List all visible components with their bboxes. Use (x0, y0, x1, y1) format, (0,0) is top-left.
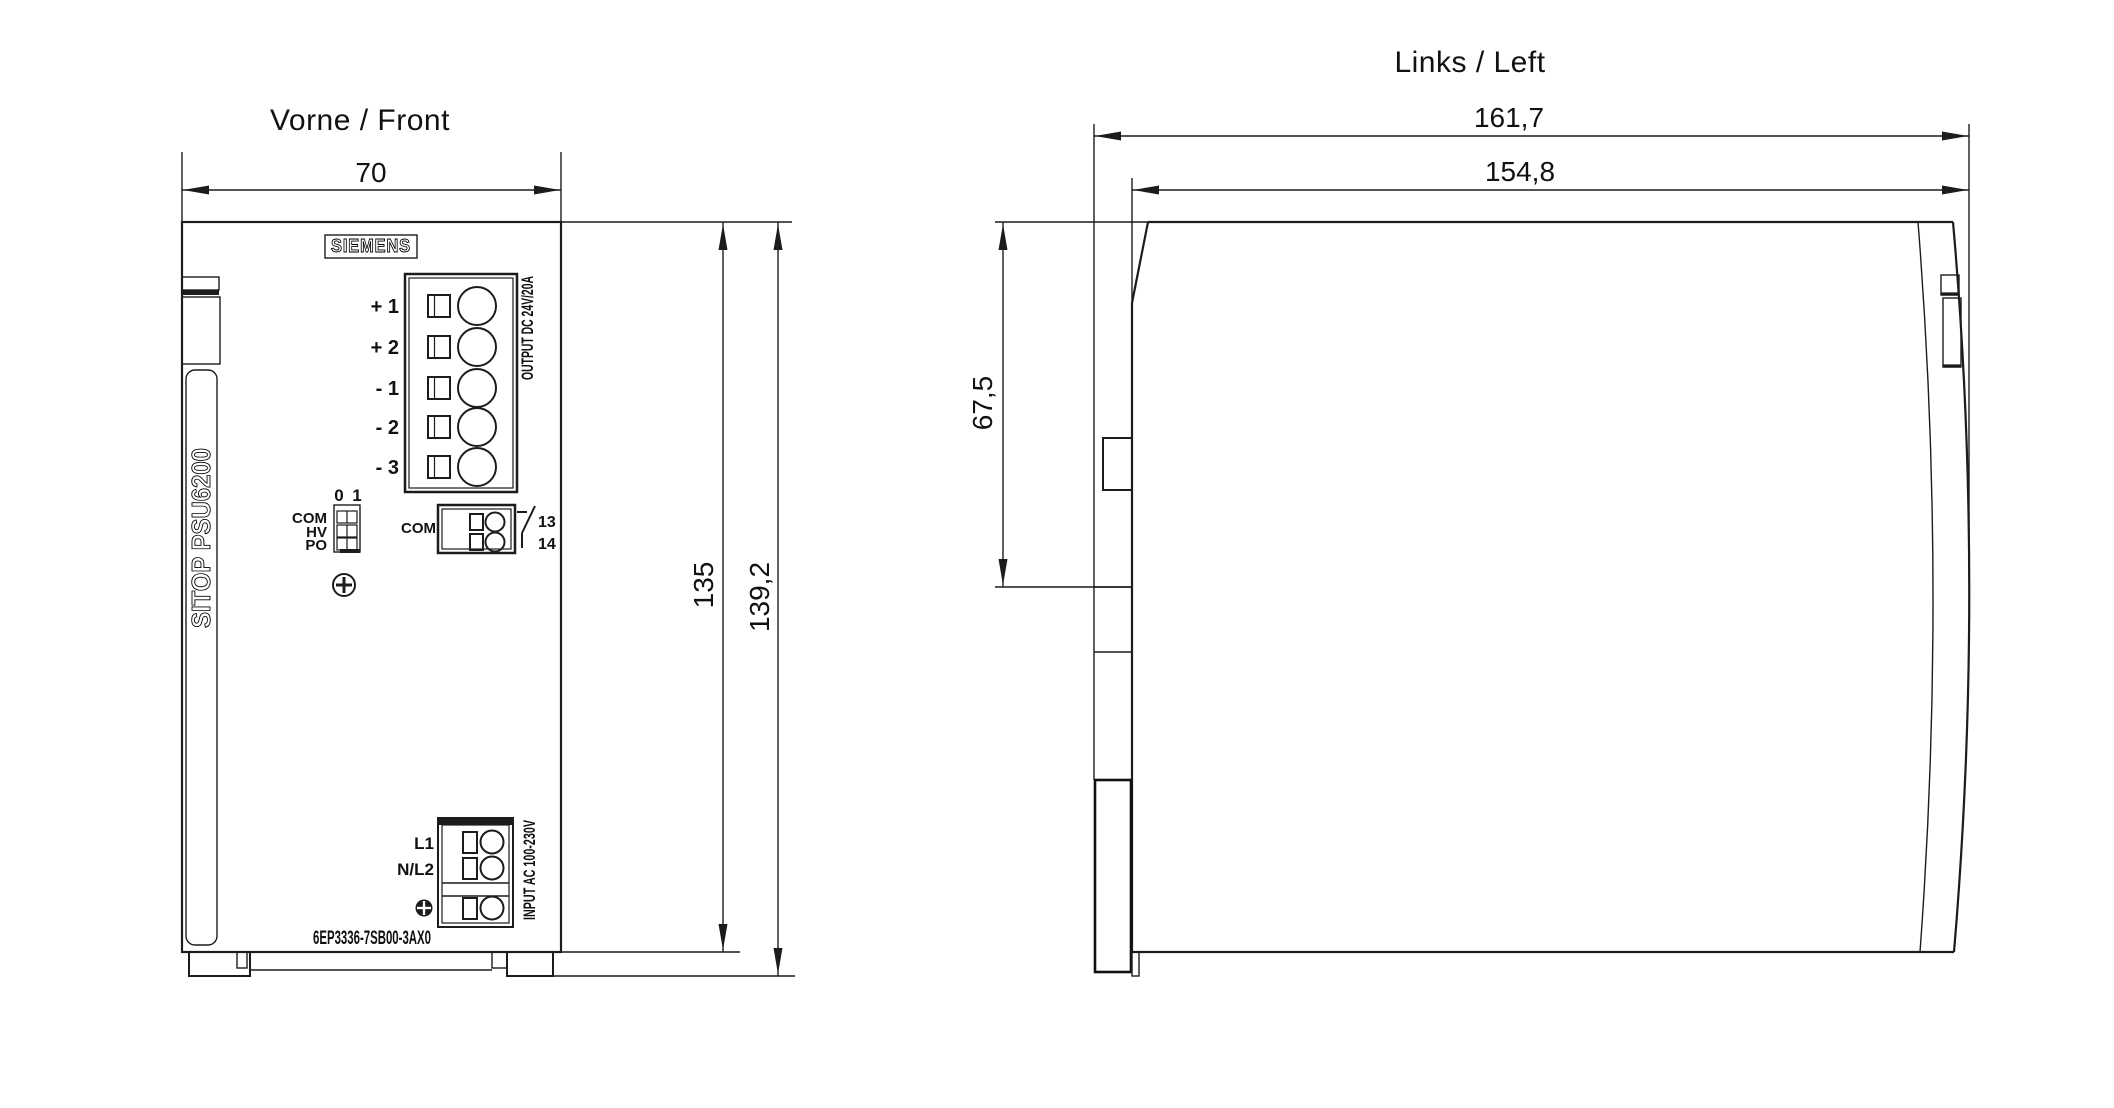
screw-terminal (458, 369, 496, 407)
input-screw-pe (481, 897, 504, 920)
output-terminal-row-4: - 2 (376, 408, 496, 446)
screw-terminal (458, 328, 496, 366)
front-face-inner-curve (1918, 222, 1933, 952)
relay-clamp-14 (470, 534, 483, 550)
front-view: Vorne / Front 70 135 139,2 (182, 104, 795, 976)
output-terminal-row-5: - 3 (376, 448, 496, 486)
input-block-top-bar (438, 818, 513, 825)
side-tab-small (182, 277, 219, 290)
dip-bottom-bar (340, 549, 360, 553)
left-top-offset-value: 67,5 (967, 376, 998, 431)
left-top-chamfer (1132, 222, 1148, 303)
input-terminal-block: L1 N/L2 INPUT AC 100-230V (397, 818, 539, 927)
dip-label-po: PO (305, 537, 327, 554)
input-screw-l1 (481, 831, 504, 854)
drawing-canvas: Vorne / Front 70 135 139,2 (0, 0, 2114, 1108)
front-width-dimension: 70 (182, 152, 561, 221)
terminal-label-plus2: + 2 (371, 337, 399, 359)
left-total-depth-value: 161,7 (1474, 102, 1544, 133)
left-view: Links / Left 161,7 154,8 67,5 (967, 46, 1969, 976)
left-body-outline (1132, 222, 1969, 952)
side-terminal-lower (1943, 298, 1961, 367)
output-terminal-row-2: + 2 (371, 328, 496, 366)
din-foot-left (189, 952, 250, 976)
dim-arrow-right (534, 186, 560, 195)
din-feet (189, 952, 553, 976)
brand-text: SIEMENS (331, 236, 411, 256)
input-clamp-n (463, 858, 477, 879)
input-screw-n (481, 857, 504, 880)
front-width-value: 70 (355, 157, 386, 188)
din-latch-slider (1095, 780, 1131, 972)
input-clamp-l1 (463, 832, 477, 853)
front-total-height-value: 139,2 (744, 562, 775, 632)
dim-arrow-left (183, 186, 209, 195)
dip-scale-1: 1 (352, 486, 361, 505)
input-rating-label: INPUT AC 100-230V (520, 820, 539, 920)
side-terminal-upper (1941, 275, 1959, 295)
output-terminal-row-3: - 1 (376, 369, 496, 407)
side-tab-bar (182, 290, 219, 295)
input-l1-label: L1 (414, 834, 434, 853)
terminal-label-plus1: + 1 (371, 296, 399, 318)
left-body-depth-value: 154,8 (1485, 156, 1555, 187)
front-body: SITOP PSU6200 (182, 222, 561, 976)
product-name-label: SITOP PSU6200 (186, 448, 216, 628)
dimension-drawing: Vorne / Front 70 135 139,2 (0, 0, 2114, 1108)
din-hook-tab (1103, 438, 1132, 490)
output-rating-label: OUTPUT DC 24V/20A (518, 276, 537, 380)
left-view-title: Links / Left (1394, 46, 1545, 79)
din-foot-step (1132, 952, 1139, 976)
output-terminal-block: + 1 + 2 - 1 - 2 - 3 OUTPUT (371, 274, 537, 492)
screw-terminal (458, 408, 496, 446)
din-foot-right (507, 952, 553, 976)
dip-scale-0: 0 (334, 486, 343, 505)
relay-terminal: COM 13 14 (401, 505, 556, 553)
screw-terminal (458, 287, 496, 325)
potentiometer-screw-icon (333, 574, 355, 596)
contact-14-label: 14 (538, 536, 556, 553)
terminal-label-minus2: - 2 (376, 417, 399, 439)
output-terminal-row-1: + 1 (371, 287, 496, 325)
input-n-label: N/L2 (397, 860, 434, 879)
terminal-label-minus3: - 3 (376, 457, 399, 479)
terminal-label-minus1: - 1 (376, 378, 399, 400)
din-notch-right (492, 952, 507, 968)
part-number: 6EP3336-7SB00-3AX0 (313, 928, 431, 949)
no-contact-symbol (517, 506, 535, 548)
dip-switch: 0 1 COM HV PO (292, 486, 362, 554)
front-height-dimensions: 135 139,2 (553, 222, 795, 976)
relay-com-label: COM (401, 520, 436, 537)
left-body-depth-dimension: 154,8 (1132, 156, 1969, 305)
screw-terminal (458, 448, 496, 486)
front-height-value: 135 (688, 562, 719, 609)
relay-clamp-13 (470, 514, 483, 530)
din-notch-left (237, 952, 247, 968)
siemens-logo: SIEMENS (325, 235, 417, 258)
contact-13-label: 13 (538, 514, 556, 531)
relay-screw-13 (486, 513, 505, 532)
input-clamp-pe (463, 898, 477, 919)
side-tab-large (182, 297, 220, 364)
protective-earth-icon (416, 900, 433, 917)
front-view-title: Vorne / Front (270, 104, 450, 137)
left-top-offset-dimension: 67,5 (967, 222, 1150, 587)
